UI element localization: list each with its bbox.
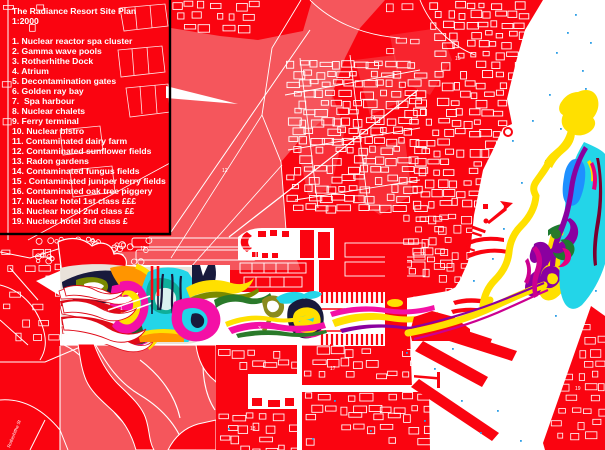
svg-text:6. Golden ray bay: 6. Golden ray bay: [12, 86, 84, 96]
svg-text:1:2000: 1:2000: [12, 16, 39, 26]
svg-text:14. Contaminated fungus fields: 14. Contaminated fungus fields: [12, 166, 140, 176]
svg-text:15 . Contaminated juniper berr: 15 . Contaminated juniper berry fields: [12, 176, 166, 186]
svg-text:18: 18: [250, 426, 256, 432]
svg-text:5. Decontamination gates: 5. Decontamination gates: [12, 76, 116, 86]
svg-text:1. Nuclear reactor spa cluster: 1. Nuclear reactor spa cluster: [12, 36, 133, 46]
svg-text:18. Nuclear hotel 2nd class ££: 18. Nuclear hotel 2nd class ££: [12, 206, 135, 216]
svg-text:13: 13: [140, 246, 146, 252]
svg-text:16. Contaminated oak tree pigg: 16. Contaminated oak tree piggery: [12, 186, 153, 196]
svg-text:8. Nuclear chalets: 8. Nuclear chalets: [12, 106, 85, 116]
svg-text:1: 1: [120, 306, 123, 312]
svg-text:3. Rotherhithe Dock: 3. Rotherhithe Dock: [12, 56, 93, 66]
svg-text:15: 15: [455, 56, 461, 62]
svg-text:17. Nuclear hotel 1st class ££: 17. Nuclear hotel 1st class £££: [12, 196, 136, 206]
svg-text:4. Atrium: 4. Atrium: [12, 66, 49, 76]
svg-text:13. Radon gardens: 13. Radon gardens: [12, 156, 89, 166]
svg-text:14: 14: [370, 116, 376, 122]
svg-text:11. Contaminated dairy farm: 11. Contaminated dairy farm: [12, 136, 127, 146]
svg-text:2. Gamma wave pools: 2. Gamma wave pools: [12, 46, 102, 56]
svg-text:17: 17: [330, 366, 336, 372]
svg-text:10. Nuclear bistro: 10. Nuclear bistro: [12, 126, 84, 136]
svg-text:The Radiance Resort Site Plan: The Radiance Resort Site Plan: [12, 6, 136, 16]
svg-text:7. Spa harbour: 7. Spa harbour: [12, 96, 75, 106]
svg-text:12. Contaminated sunflower fie: 12. Contaminated sunflower fields: [12, 146, 152, 156]
svg-text:19. Nuclear hotel 3rd class £: 19. Nuclear hotel 3rd class £: [12, 216, 128, 226]
svg-text:19: 19: [575, 386, 581, 392]
svg-text:3: 3: [258, 326, 261, 332]
svg-text:9. Ferry terminal: 9. Ferry terminal: [12, 116, 79, 126]
svg-text:12: 12: [222, 168, 228, 174]
